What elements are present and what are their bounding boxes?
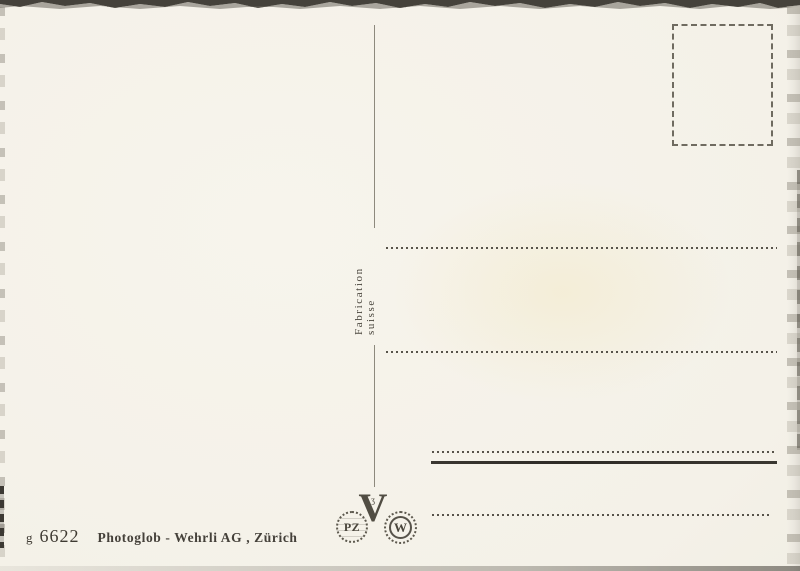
stamp-box (672, 24, 773, 146)
deckle-edge-top (0, 0, 800, 10)
divider-label: Fabrication suisse (352, 233, 378, 335)
address-line-4 (432, 514, 772, 516)
imprint-card-number: 6622 (40, 526, 80, 547)
address-line-2 (386, 351, 777, 353)
imprint-series-letter: g (26, 530, 33, 546)
publisher-imprint: g 6622 Photoglob - Wehrli AG , Zürich (26, 526, 298, 547)
postcard-scan: Fabrication suisse PZ V ʒ W g 6622 Photo… (0, 0, 800, 571)
address-line-1 (386, 247, 777, 249)
address-line-3 (432, 451, 777, 453)
deckle-edge-left-dark-mark (0, 486, 4, 548)
w-inner-circle: W (389, 516, 412, 539)
address-line-solid (431, 461, 777, 464)
bottom-edge-shadow (0, 566, 800, 571)
wehrli-circle-icon: W (384, 511, 417, 544)
postcard-back: Fabrication suisse PZ V ʒ W g 6622 Photo… (0, 0, 800, 571)
w-monogram: W (394, 520, 407, 536)
v-inner-mark: ʒ (371, 496, 375, 505)
imprint-publisher-name: Photoglob - Wehrli AG , Zürich (98, 530, 298, 546)
divider-line-upper (374, 25, 375, 228)
divider-line-lower (374, 345, 375, 487)
